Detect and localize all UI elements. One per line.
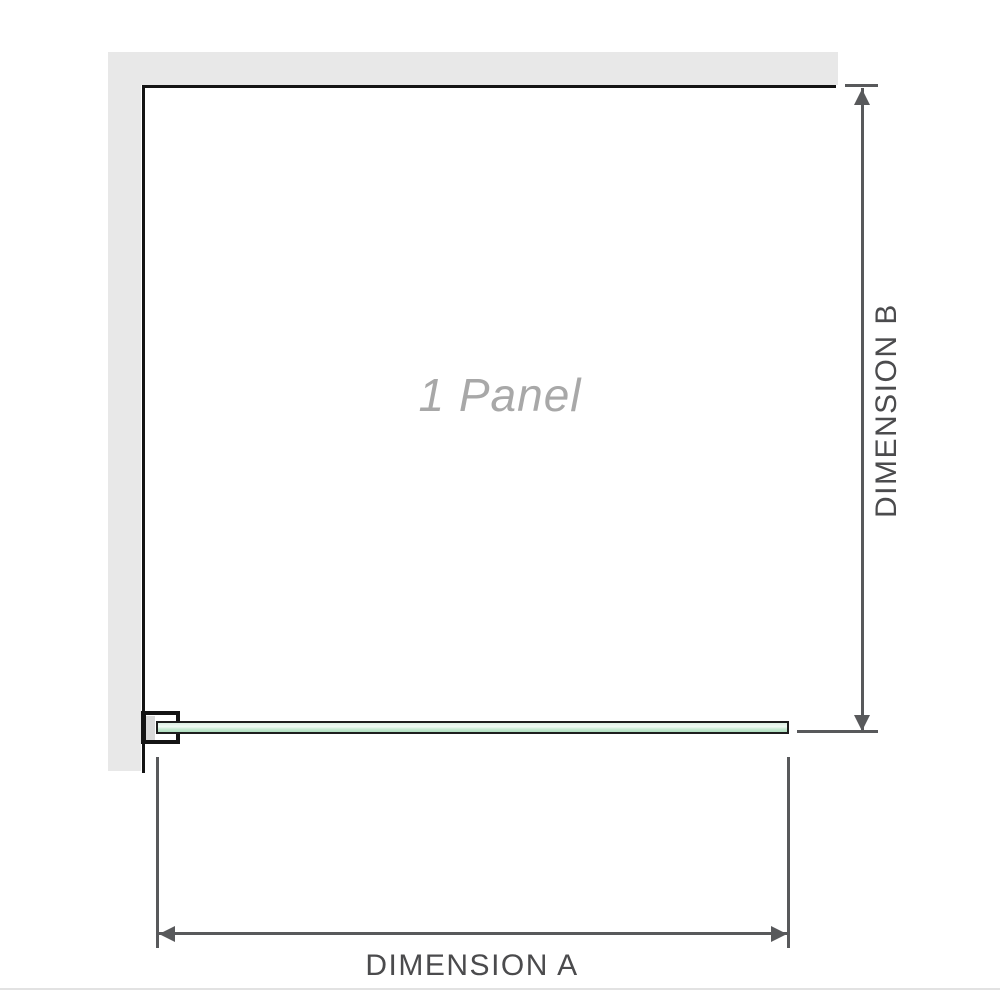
arrow-down-icon	[854, 715, 870, 731]
bottom-divider	[0, 988, 1000, 990]
wall-bracket-left	[141, 711, 146, 744]
arrow-up-icon	[854, 89, 870, 105]
enclosure-top-edge	[142, 85, 836, 88]
wall-top	[108, 52, 838, 85]
enclosure-left-edge	[142, 85, 145, 773]
arrow-right-icon	[771, 926, 787, 942]
dimension-b-line	[861, 88, 864, 732]
dimension-b-tick-top	[845, 84, 878, 87]
dimension-b-label: DIMENSION B	[867, 318, 907, 518]
glass-panel	[156, 721, 789, 734]
wall-bracket-top	[141, 711, 180, 715]
wall-bracket-bottom	[141, 740, 180, 744]
panel-count-label: 1 Panel	[330, 368, 670, 422]
wall-bracket-pad	[146, 716, 155, 740]
dimension-a-label: DIMENSION A	[322, 946, 622, 986]
dimension-a-line	[159, 932, 787, 935]
dimension-a-tick-left	[156, 757, 159, 948]
arrow-left-icon	[159, 926, 175, 942]
dimension-a-tick-right	[787, 757, 790, 948]
wall-left	[108, 52, 141, 771]
shower-panel-dimension-diagram: 1 Panel DIMENSION B DIMENSION A	[0, 0, 1000, 1000]
